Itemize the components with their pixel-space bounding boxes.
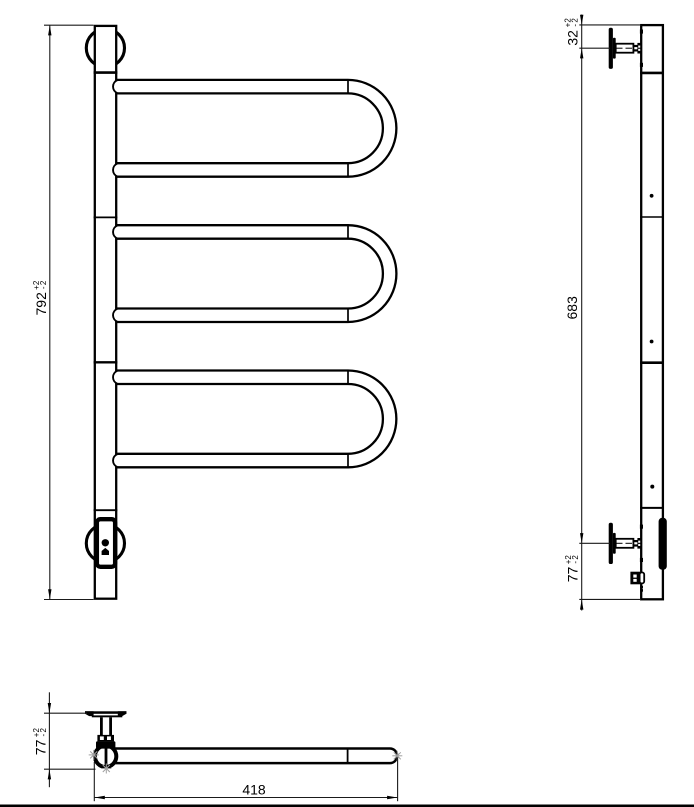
- svg-text:2: 2: [571, 555, 580, 560]
- svg-text:2: 2: [571, 18, 580, 23]
- svg-text:-: -: [571, 24, 580, 27]
- svg-text:683: 683: [564, 296, 580, 320]
- svg-text:32: 32: [564, 30, 580, 46]
- svg-text:2: 2: [39, 728, 48, 733]
- svg-text:2: 2: [39, 280, 48, 285]
- svg-text:77: 77: [33, 739, 49, 755]
- svg-text:-: -: [571, 561, 580, 564]
- svg-text:792: 792: [33, 292, 49, 316]
- svg-text:418: 418: [242, 781, 266, 797]
- svg-text:-: -: [39, 734, 48, 737]
- svg-text:77: 77: [565, 567, 581, 583]
- svg-text:-: -: [39, 286, 48, 289]
